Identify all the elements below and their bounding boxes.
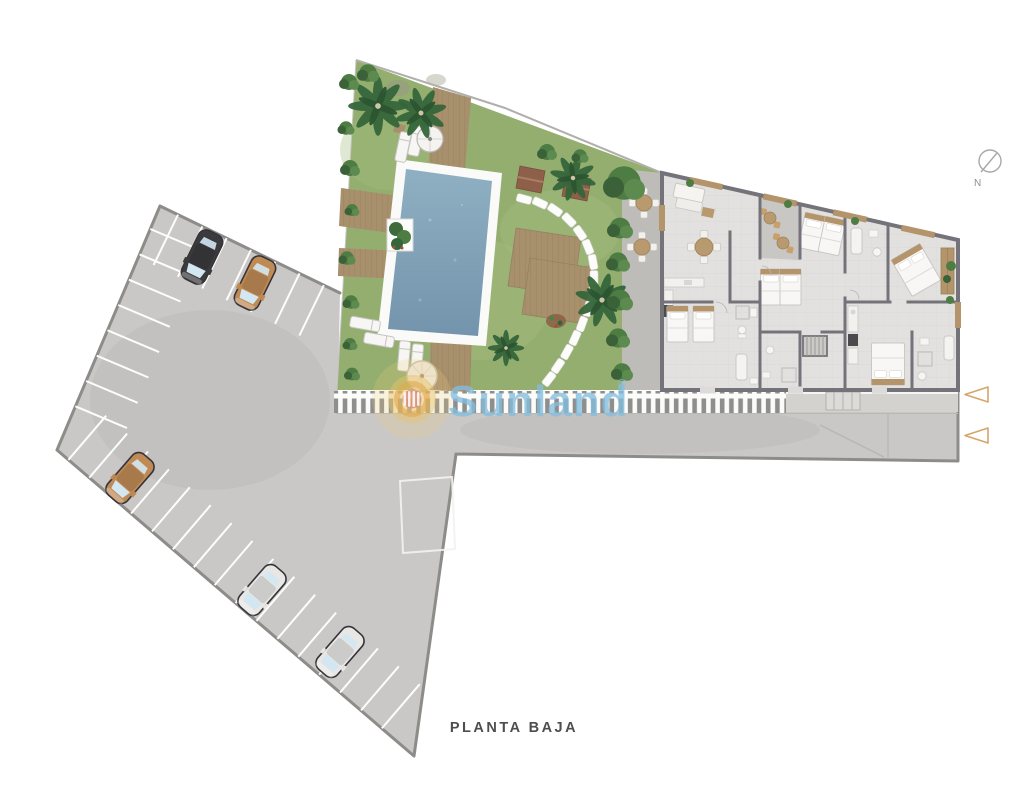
site-plan-page: Sunland ® N PLANTA BAJA xyxy=(0,0,1024,800)
swimming-pool xyxy=(377,159,502,346)
compass-icon: N xyxy=(974,150,1001,189)
pool-water xyxy=(388,169,492,336)
building-floorplan xyxy=(659,173,961,394)
parasol-icon xyxy=(417,126,443,152)
entrance-steps xyxy=(826,392,860,410)
entrance-arrow-icon-2 xyxy=(965,428,988,443)
walkway xyxy=(786,392,958,412)
sunland-logo-icon xyxy=(372,359,452,439)
flower-bed xyxy=(546,314,566,328)
site-plan-svg: Sunland ® N PLANTA BAJA xyxy=(0,0,1024,800)
watermark-brand-text: Sunland xyxy=(448,377,629,426)
planter-box xyxy=(387,219,413,251)
entrance-markers xyxy=(965,387,988,443)
north-label: N xyxy=(974,178,981,189)
terrace xyxy=(622,169,662,390)
entrance-arrow-icon-1 xyxy=(965,387,988,402)
floor-plan-label: PLANTA BAJA xyxy=(450,720,578,736)
watermark-registered-mark: ® xyxy=(618,378,626,390)
